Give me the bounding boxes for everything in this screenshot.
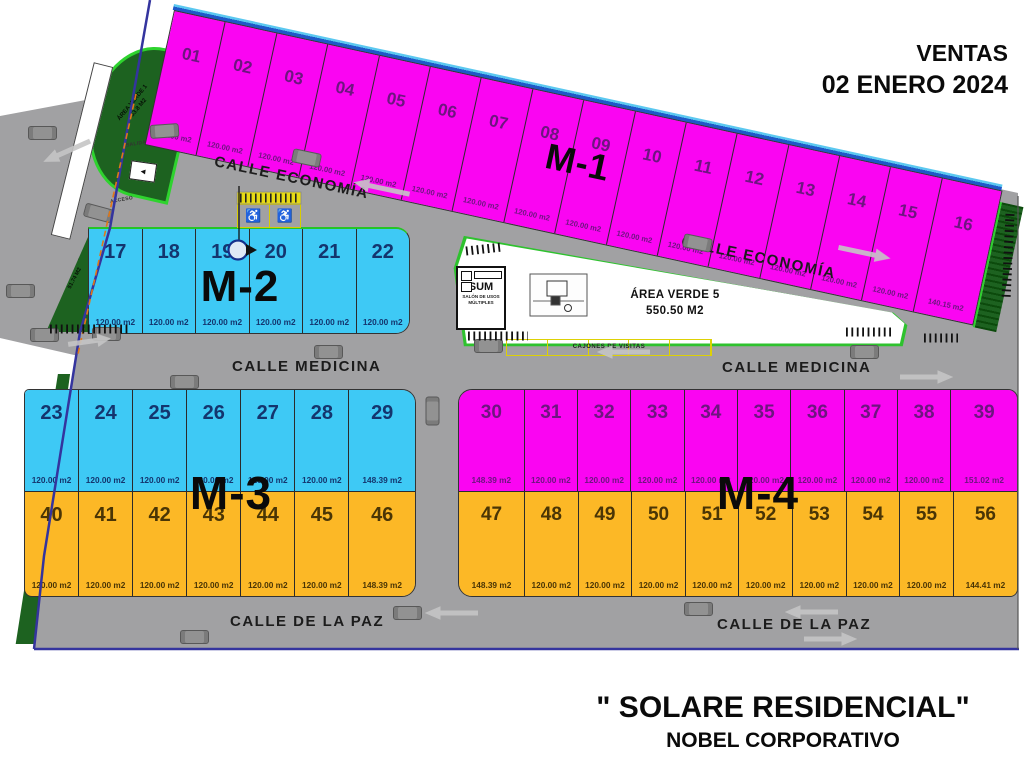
lot-number: 49	[594, 504, 615, 526]
lot-area: 120.00 m2	[32, 580, 72, 596]
street-calle-de-la-paz-left: CALLE DE LA PAZ	[230, 613, 380, 630]
lot-number: 22	[372, 241, 394, 264]
lot-area: 120.00 m2	[746, 580, 786, 596]
lot-area: 120.00 m2	[302, 475, 342, 491]
lot-number: 39	[974, 402, 995, 424]
lot-number: 29	[371, 402, 393, 425]
lot-number: 21	[318, 241, 340, 264]
handicap-parking: ♿ ♿	[237, 204, 301, 228]
lot-number: 47	[481, 504, 502, 526]
lot-number: 32	[594, 402, 615, 424]
lot-number: 45	[311, 504, 333, 527]
lot-50[interactable]: 50120.00 m2	[632, 492, 686, 596]
lot-area: 120.00 m2	[309, 317, 349, 333]
lot-45[interactable]: 45120.00 m2	[295, 492, 349, 596]
project-subtitle: NOBEL CORPORATIVO	[548, 726, 1018, 755]
sum-subtitle: SALÓN DE USOS MÚLTIPLES	[458, 293, 504, 307]
area-verde-5-label: ÁREA VERDE 5550.50 M2	[590, 288, 760, 319]
lot-area: 120.00 m2	[194, 580, 234, 596]
ventas-header: VENTAS 02 ENERO 2024	[822, 38, 1008, 103]
lot-area: 120.00 m2	[32, 475, 72, 491]
lot-area: 120.00 m2	[907, 580, 947, 596]
lot-55[interactable]: 55120.00 m2	[900, 492, 954, 596]
lot-21[interactable]: 21120.00 m2	[303, 229, 357, 333]
lot-number: 40	[40, 504, 62, 527]
lot-number: 30	[481, 402, 502, 424]
sum-window	[474, 271, 502, 279]
lot-number: 31	[540, 402, 561, 424]
lot-area: 148.39 m2	[362, 475, 402, 491]
block-m3-label: M-3	[161, 470, 301, 516]
ventas-title: VENTAS	[822, 38, 1008, 69]
street-calle-de-la-paz-right: CALLE DE LA PAZ	[717, 616, 867, 633]
project-title: " SOLARE RESIDENCIAL"	[548, 690, 1018, 726]
lot-number: 07	[487, 111, 510, 135]
lot-38[interactable]: 38120.00 m2	[898, 390, 951, 491]
lot-number: 17	[104, 241, 126, 264]
lot-number: 11	[692, 156, 714, 179]
lot-number: 06	[436, 100, 459, 124]
lot-area: 120.00 m2	[256, 317, 296, 333]
lot-area: 120.00 m2	[904, 475, 944, 491]
lot-number: 36	[807, 402, 828, 424]
lot-number: 33	[647, 402, 668, 424]
lot-area: 120.00 m2	[86, 580, 126, 596]
block-m2: 17120.00 m218120.00 m219120.00 m220120.0…	[88, 227, 410, 334]
lot-number: 38	[913, 402, 934, 424]
lot-number: 24	[94, 402, 116, 425]
sum-building: SUM SALÓN DE USOS MÚLTIPLES	[456, 266, 506, 330]
lot-area: 120.00 m2	[363, 317, 403, 333]
site-plan: ÁREA VERDE 153.8 M2 ÁREA VERDE 351.74 M2…	[0, 0, 1024, 768]
lot-number: 28	[311, 402, 333, 425]
lot-number: 01	[180, 44, 203, 68]
lot-number: 19	[211, 241, 233, 264]
lot-area: 144.41 m2	[966, 580, 1006, 596]
lot-number: 16	[952, 212, 975, 236]
lot-32[interactable]: 32120.00 m2	[578, 390, 631, 491]
block-m4: 30148.39 m231120.00 m232120.00 m233120.0…	[458, 389, 1018, 597]
lot-40[interactable]: 40120.00 m2	[25, 492, 79, 596]
sum-window	[461, 271, 472, 281]
lot-area: 151.02 m2	[964, 475, 1004, 491]
direction-sign: ◄	[129, 160, 157, 182]
lot-area: 120.00 m2	[86, 475, 126, 491]
project-footer: " SOLARE RESIDENCIAL" NOBEL CORPORATIVO	[548, 690, 1018, 755]
lot-area: 120.00 m2	[639, 580, 679, 596]
lot-number: 18	[158, 241, 180, 264]
lot-49[interactable]: 49120.00 m2	[579, 492, 633, 596]
lot-number: 04	[334, 77, 357, 101]
car-icon	[180, 630, 209, 644]
lot-area: 148.39 m2	[472, 580, 512, 596]
lot-number: 26	[203, 402, 225, 425]
street-calle-medicina-right: CALLE MEDICINA	[722, 359, 867, 376]
lot-area: 120.00 m2	[248, 580, 288, 596]
lot-33[interactable]: 33120.00 m2	[631, 390, 684, 491]
car-icon	[6, 284, 35, 298]
lot-area: 120.00 m2	[532, 580, 572, 596]
lot-24[interactable]: 24120.00 m2	[79, 390, 133, 491]
car-icon	[684, 602, 713, 616]
lot-area: 120.00 m2	[584, 475, 624, 491]
car-icon	[170, 375, 199, 389]
visitor-parking-strip: CAJONES DE VISITAS	[506, 339, 712, 356]
ventas-date: 02 ENERO 2024	[822, 69, 1008, 103]
car-icon	[314, 345, 343, 359]
lot-area: 120.00 m2	[149, 317, 189, 333]
lot-48[interactable]: 48120.00 m2	[525, 492, 579, 596]
lot-number: 10	[641, 144, 664, 168]
block-m4-label: M-4	[688, 470, 828, 516]
car-icon	[426, 397, 440, 426]
car-icon	[150, 123, 180, 139]
lot-area: 120.00 m2	[853, 580, 893, 596]
lot-number: 23	[40, 402, 62, 425]
lot-number: 02	[231, 55, 254, 79]
lot-number: 13	[794, 178, 817, 202]
car-icon	[30, 328, 59, 342]
lot-area: 120.00 m2	[140, 580, 180, 596]
car-icon	[92, 327, 121, 341]
street-calle-medicina-left: CALLE MEDICINA	[232, 358, 377, 375]
lot-31[interactable]: 31120.00 m2	[525, 390, 578, 491]
lot-41[interactable]: 41120.00 m2	[79, 492, 133, 596]
lot-23[interactable]: 23120.00 m2	[25, 390, 79, 491]
lot-area: 148.39 m2	[472, 475, 512, 491]
lot-22[interactable]: 22120.00 m2	[357, 229, 410, 333]
block-m3: 23120.00 m224120.00 m225120.00 m226120.0…	[24, 389, 416, 597]
lot-number: 41	[94, 504, 116, 527]
visitor-parking-label: CAJONES DE VISITAS	[507, 344, 711, 350]
lot-area: 120.00 m2	[302, 580, 342, 596]
lot-area: 120.00 m2	[585, 580, 625, 596]
lot-37[interactable]: 37120.00 m2	[845, 390, 898, 491]
lot-29[interactable]: 29148.39 m2	[349, 390, 415, 491]
lot-area: 120.00 m2	[799, 580, 839, 596]
lot-47[interactable]: 47148.39 m2	[459, 492, 525, 596]
car-icon	[393, 606, 422, 620]
lot-30[interactable]: 30148.39 m2	[459, 390, 525, 491]
handicap-icon: ♿	[270, 205, 301, 227]
lot-number: 54	[862, 504, 883, 526]
lot-area: 120.00 m2	[531, 475, 571, 491]
sign-arrow-icon: ◄	[138, 166, 147, 176]
lot-area: 120.00 m2	[202, 317, 242, 333]
lot-area: 120.00 m2	[692, 580, 732, 596]
lot-number: 55	[916, 504, 937, 526]
sum-window	[461, 282, 472, 292]
lot-39[interactable]: 39151.02 m2	[951, 390, 1017, 491]
lot-area: 120.00 m2	[851, 475, 891, 491]
lot-56[interactable]: 56144.41 m2	[954, 492, 1017, 596]
lot-number: 48	[541, 504, 562, 526]
lot-area: 148.39 m2	[362, 580, 402, 596]
lot-number: 05	[385, 89, 408, 113]
lot-number: 14	[845, 189, 868, 213]
lot-number: 12	[743, 167, 766, 191]
lot-number: 50	[648, 504, 669, 526]
lot-28[interactable]: 28120.00 m2	[295, 390, 349, 491]
car-icon	[28, 126, 57, 140]
lot-number: 15	[897, 200, 920, 224]
lot-number: 27	[257, 402, 279, 425]
block-m2-label: M-2	[170, 265, 310, 309]
lot-number: 35	[754, 402, 775, 424]
car-icon	[474, 339, 503, 353]
handicap-icon: ♿	[238, 205, 270, 227]
lot-number: 03	[282, 66, 305, 90]
lot-area: 120.00 m2	[638, 475, 678, 491]
lot-17[interactable]: 17120.00 m2	[89, 229, 143, 333]
lot-number: 37	[860, 402, 881, 424]
lot-number: 34	[700, 402, 721, 424]
lot-number: 56	[975, 504, 996, 526]
lot-54[interactable]: 54120.00 m2	[847, 492, 901, 596]
lot-number: 25	[149, 402, 171, 425]
car-icon	[850, 345, 879, 359]
lot-number: 46	[371, 504, 393, 527]
lot-number: 20	[265, 241, 287, 264]
lot-46[interactable]: 46148.39 m2	[349, 492, 415, 596]
